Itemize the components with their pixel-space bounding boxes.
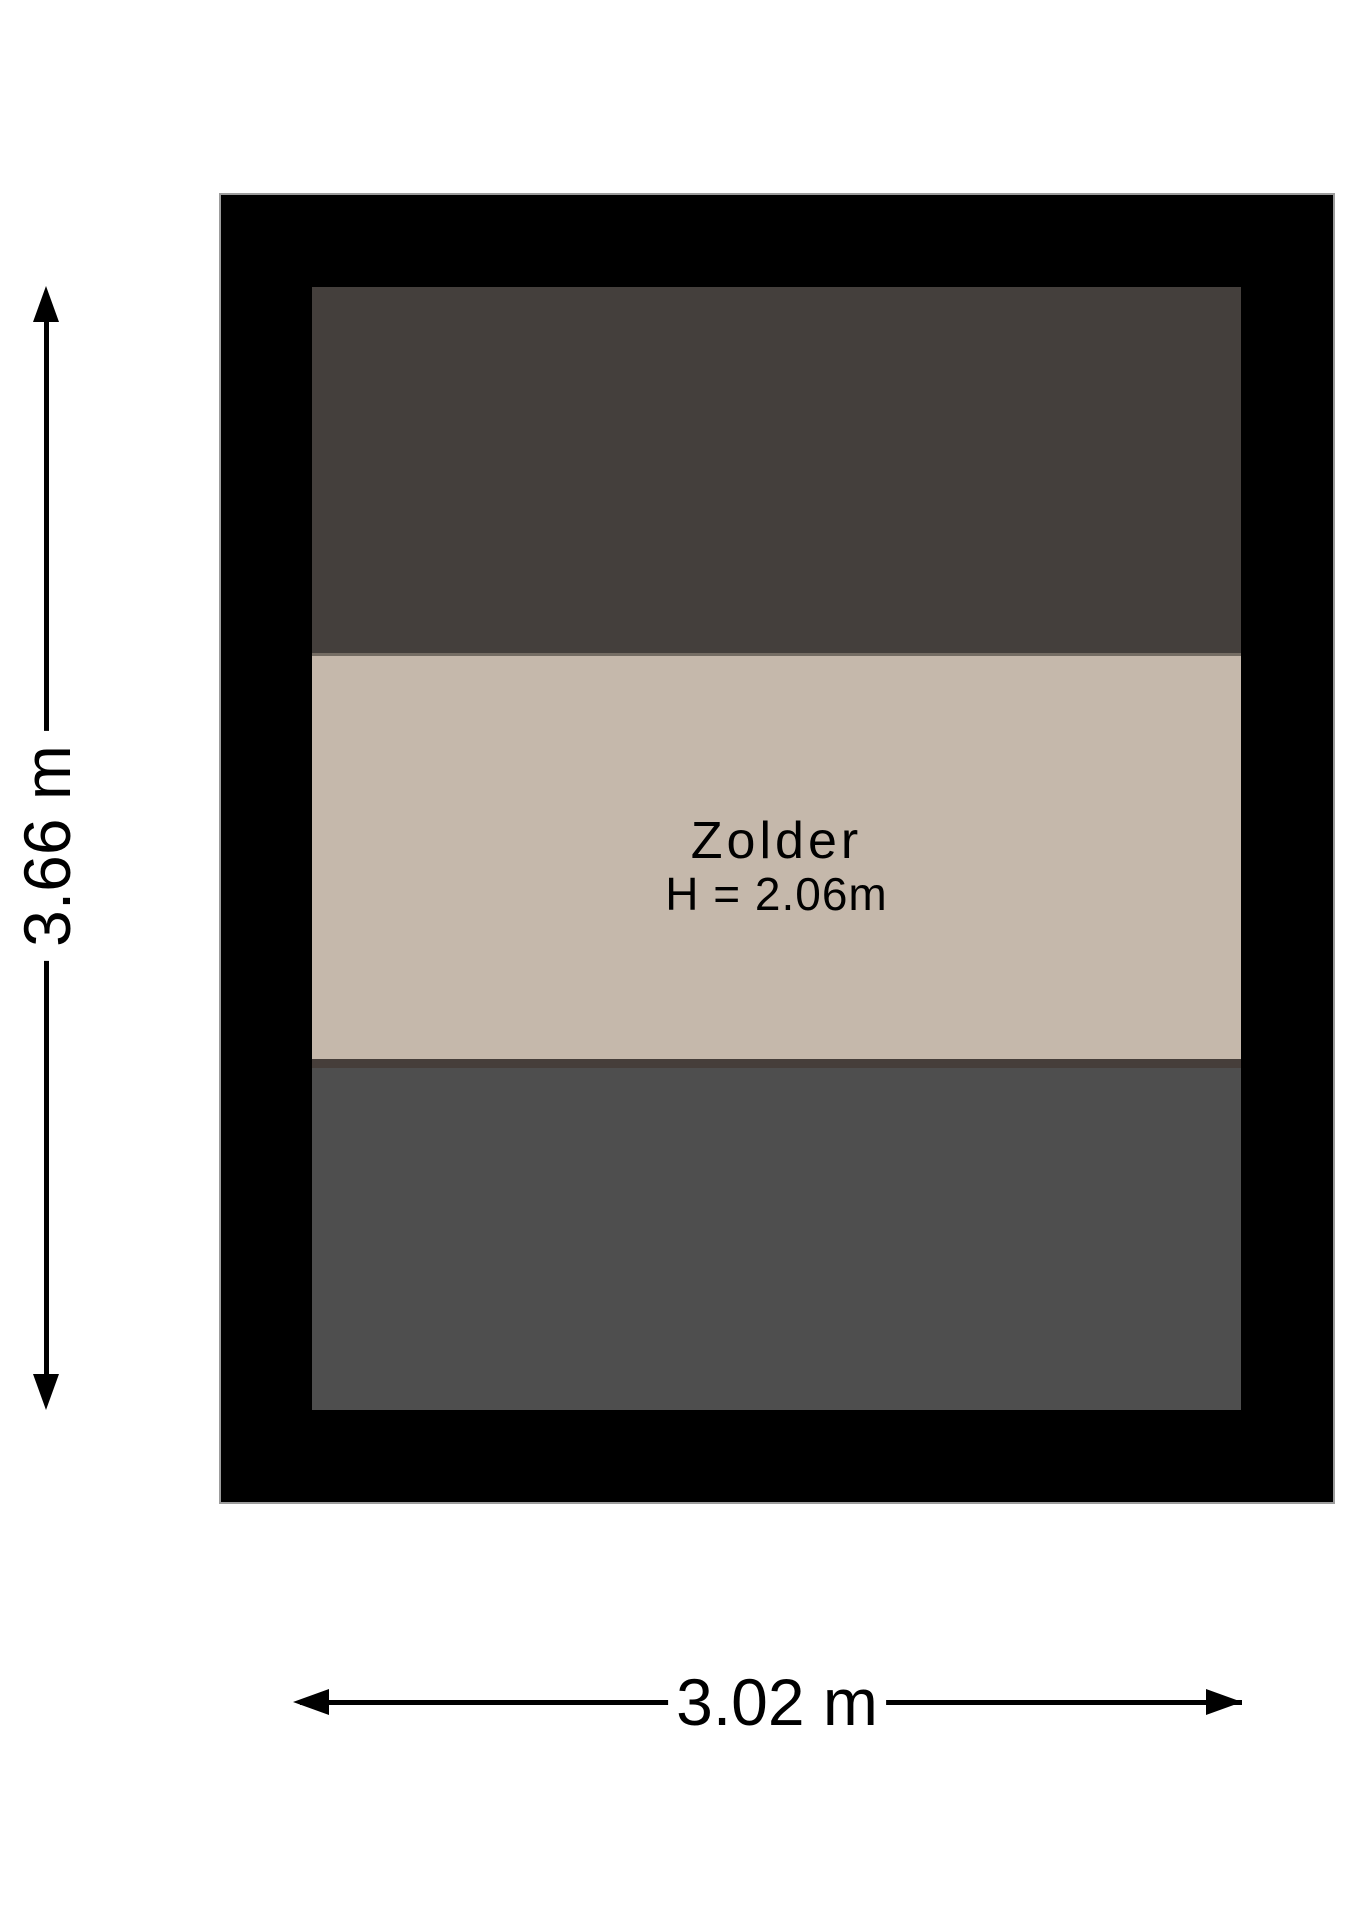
arrow-right-icon [1206, 1689, 1242, 1715]
arrow-up-icon [33, 286, 59, 322]
sloped-ceiling-area-bottom [312, 1068, 1241, 1410]
sloped-ceiling-area-top [312, 287, 1241, 656]
room-walls: Zolder H = 2.06m [221, 195, 1333, 1502]
room-label-block: Zolder H = 2.06m [312, 812, 1241, 918]
room-ceiling-height-label: H = 2.06m [312, 870, 1241, 918]
vertical-dimension-label: 3.66 m [9, 731, 85, 961]
room-name-label: Zolder [312, 812, 1241, 870]
floorplan-canvas: Zolder H = 2.06m 3.66 m 3.02 m [0, 0, 1358, 1920]
arrow-left-icon [293, 1689, 329, 1715]
room-zolder: Zolder H = 2.06m [312, 287, 1241, 1410]
beam-line [312, 1059, 1241, 1068]
horizontal-dimension-label: 3.02 m [668, 1664, 886, 1740]
arrow-down-icon [33, 1374, 59, 1410]
